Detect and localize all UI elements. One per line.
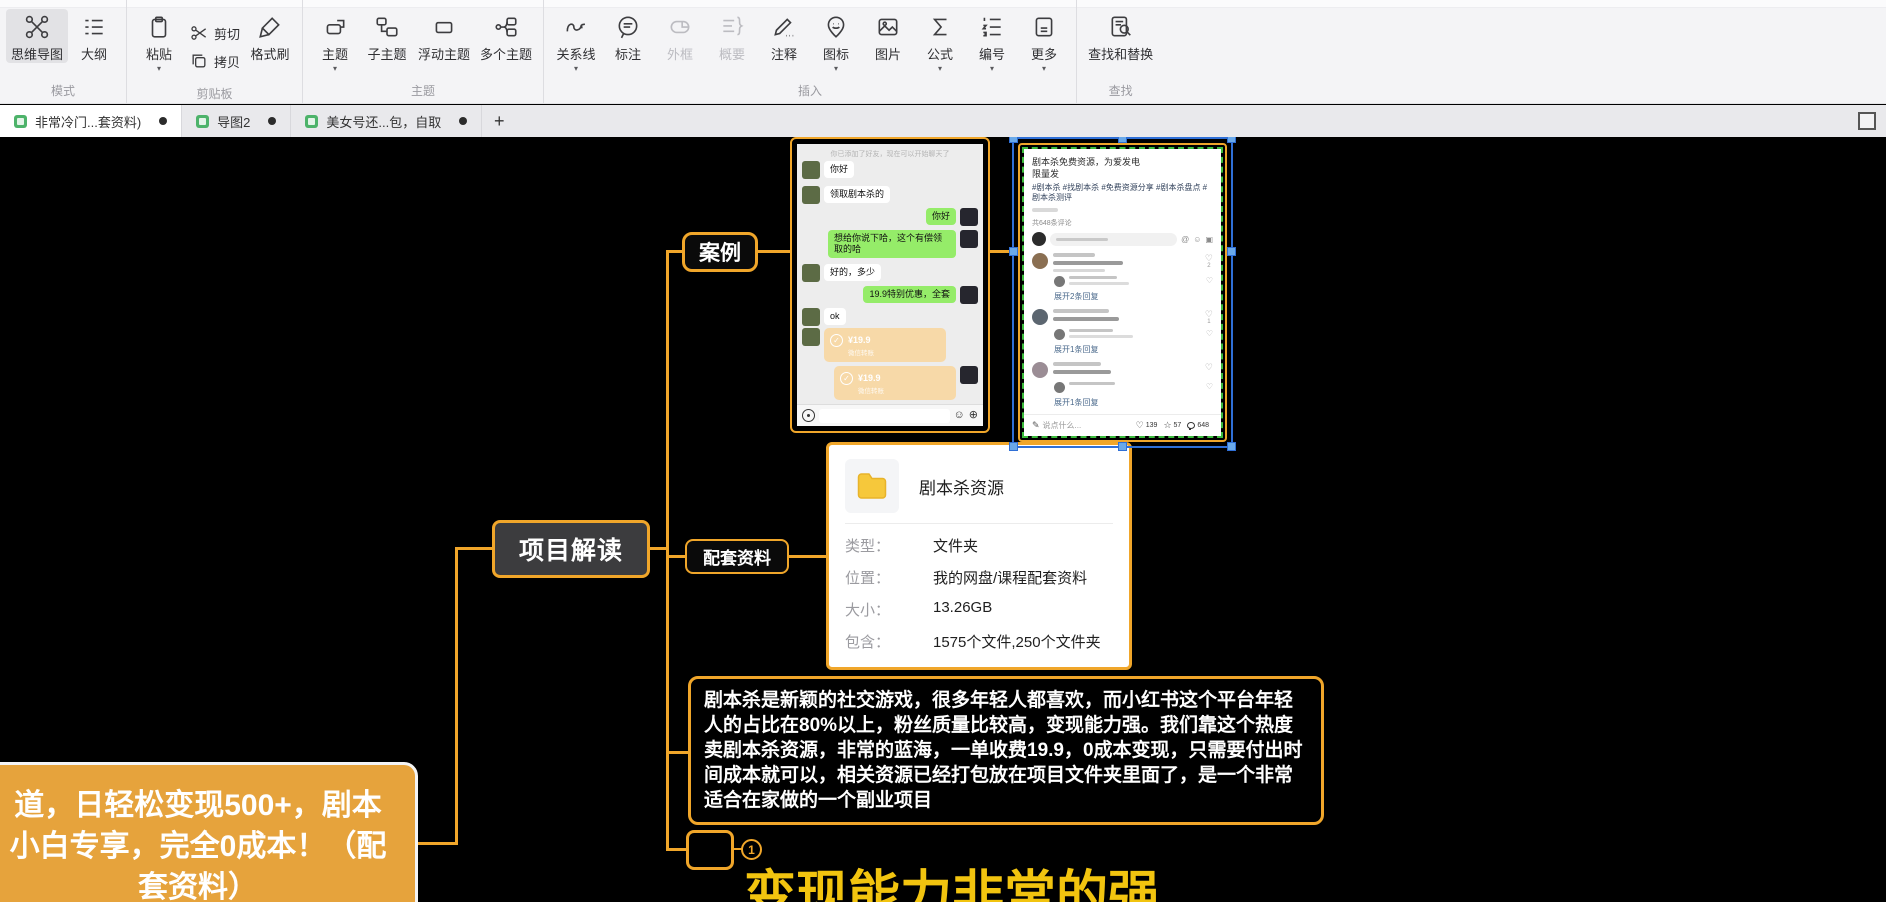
marker-button[interactable]: 图标 xyxy=(810,9,862,72)
emoji-icon: ☺ xyxy=(1193,235,1201,244)
chat-image-node[interactable]: 你已添加了好友，现在可以开始聊天了 你好 领取剧本杀的 你好 想给你说下哈，这个… xyxy=(790,137,990,433)
mindmap-icon xyxy=(24,14,50,40)
reply-row: ♡ xyxy=(1054,382,1213,393)
outline-mode-button[interactable]: 大纲 xyxy=(68,9,120,63)
folder-info-card[interactable]: 剧本杀资源 类型： 文件夹 位置： 我的网盘/课程配套资料 大小： 13.26G… xyxy=(826,442,1132,670)
group-label-insert: 插入 xyxy=(550,82,1070,103)
selection-handle[interactable] xyxy=(1227,442,1236,451)
file-card-row: 位置： 我的网盘/课程配套资料 xyxy=(829,556,1129,588)
toolbar-group-find: 查找和替换 查找 xyxy=(1077,0,1164,103)
boundary-icon xyxy=(667,14,693,40)
more-dropdown-caret[interactable] xyxy=(1042,65,1046,72)
connector-root-vertical xyxy=(455,547,458,845)
emoji-icon: ☺ xyxy=(954,410,965,421)
multiple-topics-icon xyxy=(493,14,519,40)
pencil-icon: ✎ xyxy=(1032,420,1040,431)
picture-icon xyxy=(875,14,901,40)
topic-monetization[interactable]: 变现能力非常的强 xyxy=(744,853,1160,902)
avatar xyxy=(802,186,820,204)
file-card-row: 包含： 1575个文件,250个文件夹 xyxy=(829,620,1129,652)
ribbon-toolbar: 思维导图 大纲 模式 粘贴 剪切 xyxy=(0,0,1886,104)
multiple-topics-button[interactable]: 多个主题 xyxy=(475,9,537,63)
formula-button[interactable]: 公式 xyxy=(914,9,966,72)
document-icon xyxy=(14,115,27,128)
comment-bubble-icon xyxy=(1187,422,1195,429)
unsaved-dot xyxy=(159,117,167,125)
folder-icon xyxy=(845,459,899,513)
avatar xyxy=(802,161,820,179)
subtopic-icon xyxy=(374,14,400,40)
selection-handle[interactable] xyxy=(1227,137,1236,143)
voice-icon xyxy=(802,409,815,422)
image-node-frame: 剧本杀免费资源，为爱发电 限量发 #剧本杀 #找剧本杀 #免费资源分享 #剧本杀… xyxy=(1018,143,1227,442)
avatar xyxy=(1032,232,1046,246)
image-icon: ▣ xyxy=(1205,235,1213,244)
copy-icon xyxy=(189,51,209,71)
document-icon xyxy=(305,115,318,128)
topic-button[interactable]: 主题 xyxy=(309,9,361,72)
file-card-row: 大小： 13.26GB xyxy=(829,588,1129,620)
format-painter-button[interactable]: 格式刷 xyxy=(244,9,296,63)
connector-to-materials xyxy=(666,555,687,558)
avatar xyxy=(1032,309,1048,325)
unsaved-dot xyxy=(268,117,276,125)
connector-materials-to-card xyxy=(788,555,826,558)
selection-handle[interactable] xyxy=(1009,247,1018,256)
subtopic-button[interactable]: 子主题 xyxy=(361,9,413,63)
topic-project-reading[interactable]: 项目解读 xyxy=(492,520,650,578)
avatar xyxy=(802,264,820,282)
panel-toggle-icon[interactable] xyxy=(1858,112,1876,130)
chat-row: 你好 xyxy=(802,208,978,226)
reply-row: ♡ xyxy=(1054,329,1213,340)
like-icon: ♡ xyxy=(1206,382,1213,391)
comment-thread: ♡ ♡ 展开1条回复 xyxy=(1032,362,1213,408)
selection-handle[interactable] xyxy=(1009,137,1018,143)
topic-empty-small[interactable] xyxy=(686,830,734,870)
unsaved-dot xyxy=(459,117,467,125)
copy-button[interactable]: 拷贝 xyxy=(189,51,240,71)
cut-icon xyxy=(189,23,209,43)
avatar xyxy=(802,308,820,326)
check-icon: ✓ xyxy=(830,334,843,347)
connector-to-description xyxy=(666,751,690,754)
topic-case[interactable]: 案例 xyxy=(682,232,758,272)
like-icon: ♡ xyxy=(1205,363,1213,371)
note-button[interactable]: 注释 xyxy=(758,9,810,63)
avatar xyxy=(1032,362,1048,378)
comment-field xyxy=(1050,233,1177,246)
transfer-card: ✓ ¥19.9 微信转账 xyxy=(824,328,946,362)
wechat-screenshot: 你已添加了好友，现在可以开始聊天了 你好 领取剧本杀的 你好 想给你说下哈，这个… xyxy=(797,144,983,426)
numbering-icon xyxy=(979,14,1005,40)
toolbar-group-topic: 主题 子主题 浮动主题 多个主题 主题 xyxy=(303,0,544,103)
formula-icon xyxy=(927,14,953,40)
callout-button[interactable]: 标注 xyxy=(602,9,654,63)
chat-input-bar: ☺ ⊕ xyxy=(797,404,983,426)
connector-trunk-vertical xyxy=(666,250,669,850)
avatar xyxy=(1054,276,1065,287)
toolbar-group-mode: 思维导图 大纲 模式 xyxy=(0,0,127,103)
marker-dropdown-caret[interactable] xyxy=(834,65,838,72)
new-tab-button[interactable]: + xyxy=(482,105,516,137)
chat-row: 想给你说下哈，这个有偿领取的哈 xyxy=(802,230,978,258)
chat-row: 你好 xyxy=(802,161,978,179)
document-tab-1[interactable]: 非常冷门...套资料) xyxy=(0,105,182,137)
chat-row: 好的，多少 xyxy=(802,264,978,282)
avatar xyxy=(960,230,978,248)
plus-icon: ⊕ xyxy=(969,410,978,421)
numbering-button[interactable]: 编号 xyxy=(966,9,1018,72)
mindmap-canvas[interactable]: 案例 项目解读 配套资料 剧本杀是新颖的社交游戏，很多年轻人都喜欢，而小红书这个… xyxy=(0,137,1886,902)
comment-thread: ♡1 ♡ 展开1条回复 xyxy=(1032,309,1213,355)
paste-button[interactable]: 粘贴 xyxy=(133,9,185,72)
file-card-row: 类型： 文件夹 xyxy=(829,524,1129,556)
floating-topic-icon xyxy=(431,14,457,40)
heart-icon: ♡ xyxy=(1136,420,1144,431)
more-button[interactable]: 更多 xyxy=(1018,9,1070,72)
avatar xyxy=(960,286,978,304)
document-icon xyxy=(196,115,209,128)
topic-description[interactable]: 剧本杀是新颖的社交游戏，很多年轻人都喜欢，而小红书这个平台年轻人的占比在80%以… xyxy=(688,676,1324,825)
mindmap-mode-button[interactable]: 思维导图 xyxy=(6,9,68,63)
selection-handle[interactable] xyxy=(1009,442,1018,451)
format-painter-icon xyxy=(257,14,283,40)
marker-icon xyxy=(823,14,849,40)
chat-row-transfer: ✓ ¥19.9 微信转账 xyxy=(802,328,978,362)
paste-icon xyxy=(146,14,172,40)
selection-handle[interactable] xyxy=(1118,442,1127,451)
comment-thread: ♡2 ♡ 展开2条回复 xyxy=(1032,253,1213,302)
at-icon: @ xyxy=(1181,235,1189,244)
chat-row: 19.9特别优惠，全套 xyxy=(802,286,978,304)
like-icon: ♡2 xyxy=(1205,254,1213,270)
group-label-mode: 模式 xyxy=(6,82,120,103)
selected-image-node[interactable]: 剧本杀免费资源，为爱发电 限量发 #剧本杀 #找剧本杀 #免费资源分享 #剧本杀… xyxy=(1012,137,1233,448)
avatar xyxy=(960,366,978,384)
callout-icon xyxy=(615,14,641,40)
avatar xyxy=(1054,329,1065,340)
like-icon: ♡ xyxy=(1206,329,1213,338)
xiaohongshu-screenshot: 剧本杀免费资源，为爱发电 限量发 #剧本杀 #找剧本杀 #免费资源分享 #剧本杀… xyxy=(1024,149,1221,436)
chat-text-field xyxy=(819,409,950,423)
avatar xyxy=(960,208,978,226)
post-bottom-bar: ✎ 说点什么... ♡139 ☆57 648 xyxy=(1024,414,1221,436)
boundary-button: 外框 xyxy=(654,9,706,63)
group-label-find: 查找 xyxy=(1083,82,1158,103)
topic-icon xyxy=(322,14,348,40)
selection-handle[interactable] xyxy=(1227,247,1236,256)
toolbar-group-clipboard: 粘贴 剪切 拷贝 格式刷 剪贴板 xyxy=(127,0,303,103)
chat-row-transfer: ✓ ¥19.9 微信转账 xyxy=(802,366,978,400)
transfer-card: ✓ ¥19.9 微信转账 xyxy=(834,366,956,400)
relationship-dropdown-caret[interactable] xyxy=(574,65,578,72)
group-label-topic: 主题 xyxy=(309,82,537,103)
like-icon: ♡1 xyxy=(1205,310,1213,326)
formula-dropdown-caret[interactable] xyxy=(938,65,942,72)
outline-icon xyxy=(81,14,107,40)
topic-materials[interactable]: 配套资料 xyxy=(685,539,789,574)
find-replace-icon xyxy=(1108,14,1134,40)
summary-button: 概要 xyxy=(706,9,758,63)
connector-to-small-node xyxy=(666,848,688,851)
chat-row: ok xyxy=(802,308,978,326)
connector-root-to-project xyxy=(455,547,492,550)
floating-topic-button[interactable]: 浮动主题 xyxy=(413,9,475,63)
document-tab-bar: 非常冷门...套资料) 导图2 美女号还...包，自取 + xyxy=(0,105,1886,137)
more-icon xyxy=(1031,14,1057,40)
chat-row: 领取剧本杀的 xyxy=(802,186,978,204)
cut-button[interactable]: 剪切 xyxy=(189,23,240,43)
topic-dropdown-caret[interactable] xyxy=(333,65,337,72)
picture-button[interactable]: 图片 xyxy=(862,9,914,63)
group-label-clipboard: 剪贴板 xyxy=(133,85,296,106)
application-window: 思维导图 大纲 模式 粘贴 剪切 xyxy=(0,0,1886,902)
comment-input-row: @ ☺ ▣ xyxy=(1032,232,1213,246)
star-icon: ☆ xyxy=(1163,420,1171,431)
selection-handle[interactable] xyxy=(1118,137,1127,143)
find-replace-button[interactable]: 查找和替换 xyxy=(1083,9,1158,63)
numbering-dropdown-caret[interactable] xyxy=(990,65,994,72)
relationship-button[interactable]: 关系线 xyxy=(550,9,602,72)
post-date-bar xyxy=(1032,208,1058,212)
avatar xyxy=(802,328,820,346)
paste-dropdown-caret[interactable] xyxy=(157,65,161,72)
note-icon xyxy=(771,14,797,40)
avatar xyxy=(1054,382,1065,393)
chat-system-message: 你已添加了好友，现在可以开始聊天了 xyxy=(797,149,983,159)
toolbar-group-insert: 关系线 标注 外框 概要 注释 xyxy=(544,0,1077,103)
check-icon: ✓ xyxy=(840,372,853,385)
connector-root-horizontal xyxy=(415,842,457,845)
document-tab-2[interactable]: 导图2 xyxy=(182,105,291,137)
relationship-icon xyxy=(563,14,589,40)
summary-icon xyxy=(719,14,745,40)
document-tab-3[interactable]: 美女号还...包，自取 xyxy=(291,105,482,137)
reply-row: ♡ xyxy=(1054,276,1213,287)
root-topic[interactable]: 道，日轻松变现500+，剧本 小白专享，完全0成本！（配 套资料） xyxy=(0,762,418,902)
avatar xyxy=(1032,253,1048,269)
like-icon: ♡ xyxy=(1206,276,1213,285)
